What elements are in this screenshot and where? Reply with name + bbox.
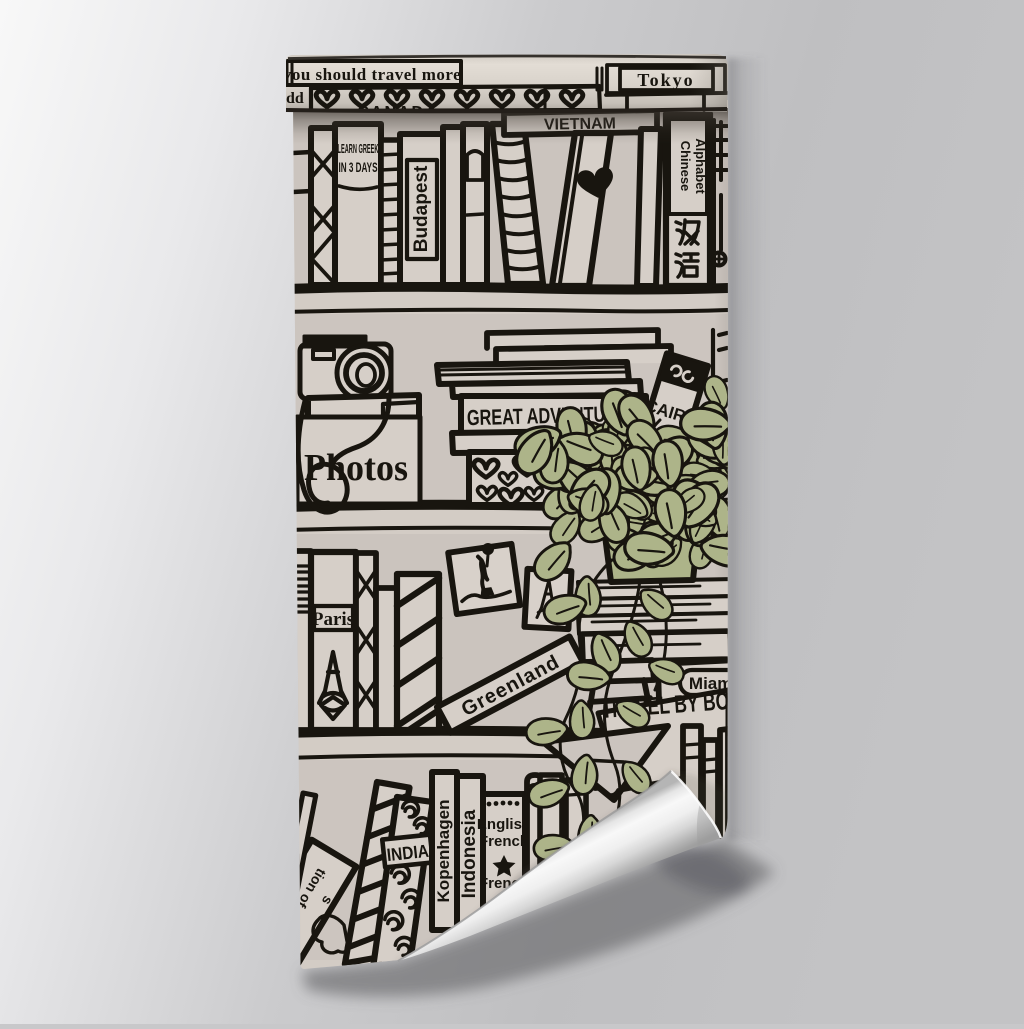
svg-text:dd: dd (286, 90, 304, 107)
svg-text:French: French (479, 833, 529, 850)
svg-text:Alphabet: Alphabet (693, 138, 708, 194)
svg-text:Chinese: Chinese (678, 141, 693, 192)
svg-text:you should travel more: you should travel more (283, 65, 461, 84)
svg-text:Kopenhagen: Kopenhagen (434, 800, 453, 903)
svg-text:English: English (477, 816, 531, 833)
svg-text:IN 3 DAYS: IN 3 DAYS (339, 159, 378, 175)
svg-text:Photos: Photos (304, 447, 408, 489)
svg-text:Budapest: Budapest (411, 165, 432, 252)
svg-text:Paris: Paris (312, 609, 354, 630)
svg-text:Tokyo: Tokyo (637, 70, 694, 90)
